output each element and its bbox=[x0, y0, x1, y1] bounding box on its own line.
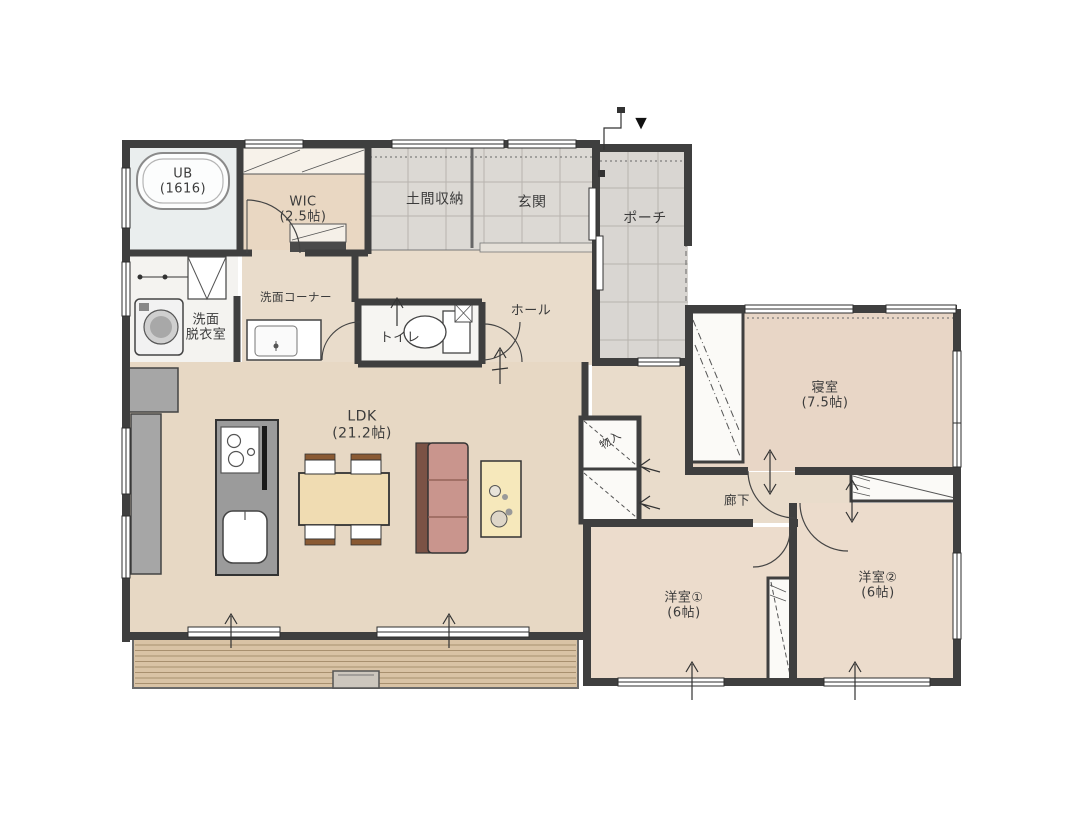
room-label-wic-size: (2.5帖) bbox=[280, 210, 327, 225]
room-label-rouka: 廊下 bbox=[724, 494, 750, 509]
room-label-yoshitsu1-size: (6帖) bbox=[664, 606, 703, 621]
room-label-wic-name: WIC bbox=[280, 195, 327, 210]
room-label-yoshitsu2-name: 洋室② bbox=[858, 571, 897, 586]
wood-deck bbox=[133, 638, 578, 688]
entrance-marker: ▼ bbox=[635, 116, 647, 131]
room-label-ldk-size: (21.2帖) bbox=[332, 425, 392, 442]
room-label-shinshitsu-name: 寝室 bbox=[802, 381, 849, 396]
room-label-shinshitsu-size: (7.5帖) bbox=[802, 396, 849, 411]
room-label-senmen-corner: 洗面コーナー bbox=[260, 291, 332, 305]
room-label-genkan: 玄関 bbox=[518, 195, 547, 212]
room-label-doma: 土間収納 bbox=[406, 192, 464, 209]
room-label-yoshitsu1: 洋室① (6帖) bbox=[664, 591, 703, 622]
sofa bbox=[416, 443, 468, 553]
room-label-senmen-datsui: 洗面 脱衣室 bbox=[186, 313, 227, 344]
room-label-porch: ポーチ bbox=[623, 211, 667, 228]
room-label-toilet-name: トイレ bbox=[380, 330, 421, 345]
room-label-ub-name: UB bbox=[160, 167, 206, 182]
room-label-toilet: トイレ bbox=[380, 330, 421, 345]
deck-step bbox=[333, 671, 379, 688]
room-label-hall-name: ホール bbox=[511, 303, 552, 318]
room-label-hall: ホール bbox=[511, 303, 552, 318]
wash-cabinet bbox=[188, 257, 226, 299]
side-table bbox=[481, 461, 521, 537]
room-label-ub-size: (1616) bbox=[160, 182, 206, 197]
room-label-rouka-name: 廊下 bbox=[724, 494, 750, 509]
room-label-yoshitsu2: 洋室② (6帖) bbox=[858, 571, 897, 602]
room-label-shinshitsu: 寝室 (7.5帖) bbox=[802, 381, 849, 412]
room-label-genkan-name: 玄関 bbox=[518, 195, 547, 212]
closet-bedroom bbox=[689, 312, 743, 462]
room-label-wic: WIC (2.5帖) bbox=[280, 195, 327, 226]
washing-machine bbox=[135, 299, 183, 355]
floor-plan-drawing bbox=[0, 0, 1087, 829]
room-label-senmen-datsui-line1: 洗面 bbox=[186, 313, 227, 328]
floor-plan: UB (1616) WIC (2.5帖) 土間収納 玄関 ポーチ 洗面 脱衣室 … bbox=[0, 0, 1087, 829]
kitchen-island bbox=[216, 420, 278, 575]
room-label-yoshitsu2-size: (6帖) bbox=[858, 586, 897, 601]
vanity-sink bbox=[247, 320, 321, 360]
room-label-doma-name: 土間収納 bbox=[406, 192, 464, 209]
closet-yoshitsu2 bbox=[851, 471, 959, 501]
room-label-porch-name: ポーチ bbox=[623, 211, 667, 228]
room-label-senmen-corner-name: 洗面コーナー bbox=[260, 291, 332, 305]
room-label-ub: UB (1616) bbox=[160, 167, 206, 198]
room-label-ldk: LDK (21.2帖) bbox=[332, 408, 392, 441]
room-label-yoshitsu1-name: 洋室① bbox=[664, 591, 703, 606]
room-label-senmen-datsui-line2: 脱衣室 bbox=[186, 328, 227, 343]
floors bbox=[128, 146, 957, 682]
room-label-ldk-name: LDK bbox=[332, 408, 392, 425]
